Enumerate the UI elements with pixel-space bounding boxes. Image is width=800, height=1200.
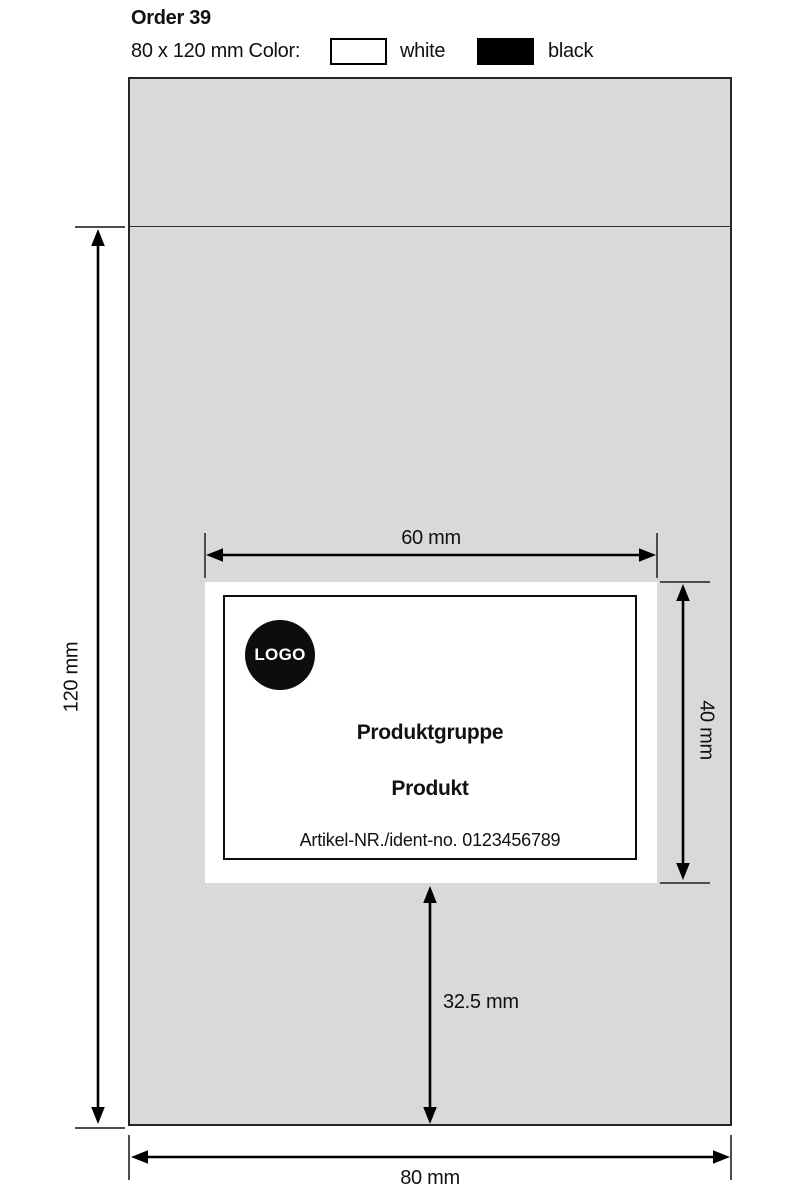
black-color-swatch bbox=[477, 38, 534, 65]
logo-badge: LOGO bbox=[245, 620, 315, 690]
dim-40-arrowhead-top bbox=[676, 584, 690, 601]
proof-sheet: Order 39 80 x 120 mm Color: white black … bbox=[0, 0, 800, 1200]
product-name-text: Produkt bbox=[223, 777, 637, 801]
dim-120-arrowhead-top bbox=[91, 229, 105, 246]
dim-80-label: 80 mm bbox=[128, 1167, 732, 1190]
dim-325-label: 32.5 mm bbox=[443, 991, 519, 1014]
dim-120-label: 120 mm bbox=[61, 642, 84, 712]
dim-60-arrowhead-left bbox=[206, 548, 223, 562]
dim-120-arrow bbox=[88, 228, 108, 1125]
logo-text: LOGO bbox=[254, 645, 305, 665]
dim-325-arrow bbox=[420, 885, 440, 1125]
white-color-swatch bbox=[330, 38, 387, 65]
dim-120-arrowhead-bottom bbox=[91, 1107, 105, 1124]
dim-40-arrowhead-bottom bbox=[676, 863, 690, 880]
dim-40-arrow bbox=[673, 583, 693, 881]
dim-60-label: 60 mm bbox=[205, 527, 657, 550]
white-swatch-label: white bbox=[400, 40, 445, 63]
dim-325-arrowhead-top bbox=[423, 886, 437, 903]
product-group-text: Produktgruppe bbox=[223, 721, 637, 745]
black-swatch-label: black bbox=[548, 40, 593, 63]
bag-fold-line bbox=[128, 226, 732, 227]
dim-120-tick-bottom bbox=[75, 1127, 125, 1129]
dim-325-arrowhead-bottom bbox=[423, 1107, 437, 1124]
article-number-text: Artikel-NR./ident-no. 0123456789 bbox=[223, 830, 637, 851]
dim-40-label: 40 mm bbox=[695, 700, 718, 760]
dim-80-arrowhead-left bbox=[131, 1150, 148, 1164]
dim-80-arrow bbox=[130, 1147, 731, 1167]
size-color-label: 80 x 120 mm Color: bbox=[131, 40, 300, 63]
dim-40-tick-bottom bbox=[660, 882, 710, 884]
order-title: Order 39 bbox=[131, 7, 211, 30]
dim-80-arrowhead-right bbox=[713, 1150, 730, 1164]
dim-60-arrowhead-right bbox=[639, 548, 656, 562]
